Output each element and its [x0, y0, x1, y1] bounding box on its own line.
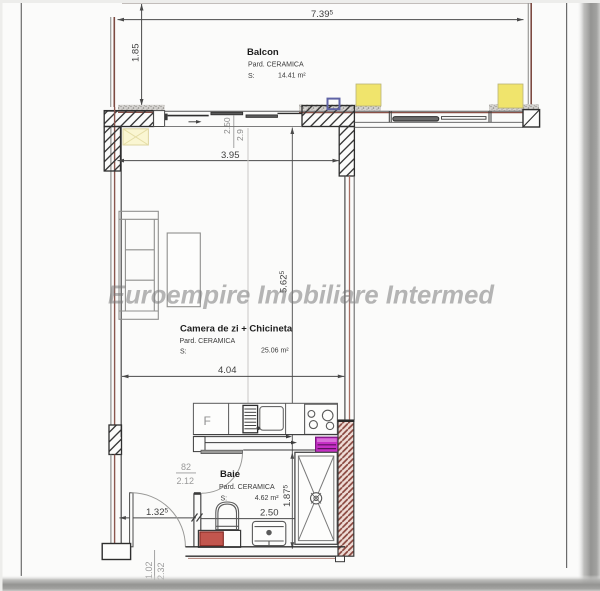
svg-text:Pard. CERAMICA: Pard. CERAMICA — [180, 338, 236, 345]
svg-text:Camera de zi + Chicineta: Camera de zi + Chicineta — [180, 324, 293, 335]
svg-text:F: F — [204, 414, 211, 428]
svg-text:4.62 m²: 4.62 m² — [255, 495, 279, 502]
svg-text:14.41 m²: 14.41 m² — [278, 73, 306, 80]
svg-text:4.04: 4.04 — [218, 365, 237, 376]
svg-text:S:: S: — [221, 496, 228, 503]
svg-text:25.06 m²: 25.06 m² — [261, 348, 289, 355]
svg-text:3.95: 3.95 — [221, 150, 240, 161]
svg-text:2.9: 2.9 — [235, 129, 245, 141]
svg-text:S:: S: — [180, 349, 187, 356]
svg-text:2.50: 2.50 — [222, 117, 232, 134]
svg-text:2.12: 2.12 — [177, 476, 195, 486]
svg-text:Baie: Baie — [220, 469, 240, 480]
svg-text:Pard. CERAMICA: Pard. CERAMICA — [219, 484, 275, 491]
svg-text:Euroempire Imobiliare Intermed: Euroempire Imobiliare Intermed — [108, 280, 495, 310]
svg-text:82: 82 — [181, 462, 191, 472]
svg-text:Pard. CERAMICA: Pard. CERAMICA — [248, 62, 304, 69]
svg-text:1.85: 1.85 — [131, 44, 142, 63]
svg-text:2.50: 2.50 — [260, 508, 279, 519]
svg-text:S:: S: — [248, 73, 255, 80]
svg-text:Balcon: Balcon — [247, 47, 279, 58]
